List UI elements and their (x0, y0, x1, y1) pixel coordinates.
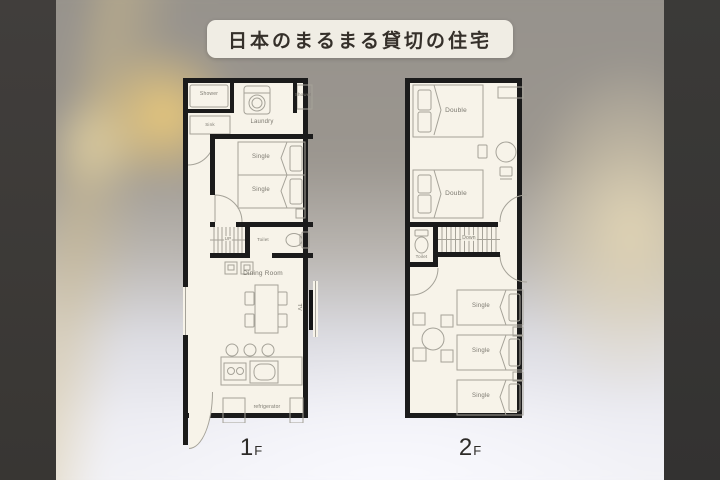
wall-segment (410, 222, 498, 227)
stairs-label-up: UP (215, 236, 241, 241)
toilet-icon (415, 230, 428, 253)
scene: 日本のまるまる貸切の住宅 (0, 0, 720, 480)
bedroom-door-arc (500, 195, 527, 222)
kitchen-stools (226, 344, 274, 356)
background-right-panel (664, 0, 720, 480)
toilet-door-arc (410, 268, 438, 295)
wall-segment (410, 262, 433, 267)
room-label-single-1: Single (460, 303, 502, 310)
wall-segment (438, 252, 500, 257)
room-label-dining: Dining Room (223, 270, 303, 277)
room-label-double-top: Double (434, 107, 478, 114)
room-label-single-bottom: Single (238, 187, 284, 194)
background-photo (0, 0, 720, 480)
wall-segment (230, 83, 234, 111)
page-title: 日本のまるまる貸切の住宅 (228, 26, 492, 53)
label-tv: TV (296, 299, 302, 315)
round-table-lower (413, 313, 453, 362)
washing-machine-icon (244, 86, 270, 114)
floorplan-1f: Shower Sink Laundry Shower Single Single… (183, 78, 308, 418)
dining-table (245, 285, 287, 333)
wall-segment (210, 253, 250, 258)
wall-segment (188, 109, 234, 113)
wall-segment (210, 134, 313, 139)
window (313, 281, 318, 337)
room-label-single-2: Single (460, 348, 502, 355)
round-table-upper (478, 142, 516, 179)
room-label-single-3: Single (460, 393, 502, 400)
wall-segment (210, 139, 215, 195)
toilet-icon (286, 232, 309, 248)
floor1-label: 1F (225, 436, 277, 460)
room-label-double-bottom: Double (434, 190, 478, 197)
floor2-label: 2F (444, 436, 496, 460)
background-left-panel (0, 0, 56, 480)
room-label-shower-left: Shower (188, 92, 230, 98)
room-label-toilet: Toilet (250, 237, 276, 242)
kitchen-counter (221, 357, 302, 385)
tv-unit (309, 290, 313, 330)
stairs-label-down: Down (452, 236, 486, 242)
hall-door-arc (500, 255, 527, 282)
wall-segment (272, 253, 313, 258)
room-label-sink: Sink (190, 122, 230, 127)
window (183, 287, 188, 335)
room-label-toilet: Toilet (410, 254, 433, 259)
room-label-shower-right: Shower (293, 92, 313, 97)
wall-segment (293, 83, 297, 113)
closet-box (296, 209, 305, 218)
wall-segment (210, 222, 215, 227)
title-banner: 日本のまるまる貸切の住宅 (207, 20, 513, 58)
wall-segment (183, 392, 188, 445)
room-label-single-top: Single (238, 154, 284, 161)
wall-segment (433, 227, 438, 267)
label-refrigerator: refrigerator (245, 405, 289, 411)
floorplan-2f: Double Double Down Toilet Single Single … (405, 78, 522, 418)
room-label-laundry: Laundry (234, 119, 290, 126)
shelf-box (498, 87, 523, 98)
